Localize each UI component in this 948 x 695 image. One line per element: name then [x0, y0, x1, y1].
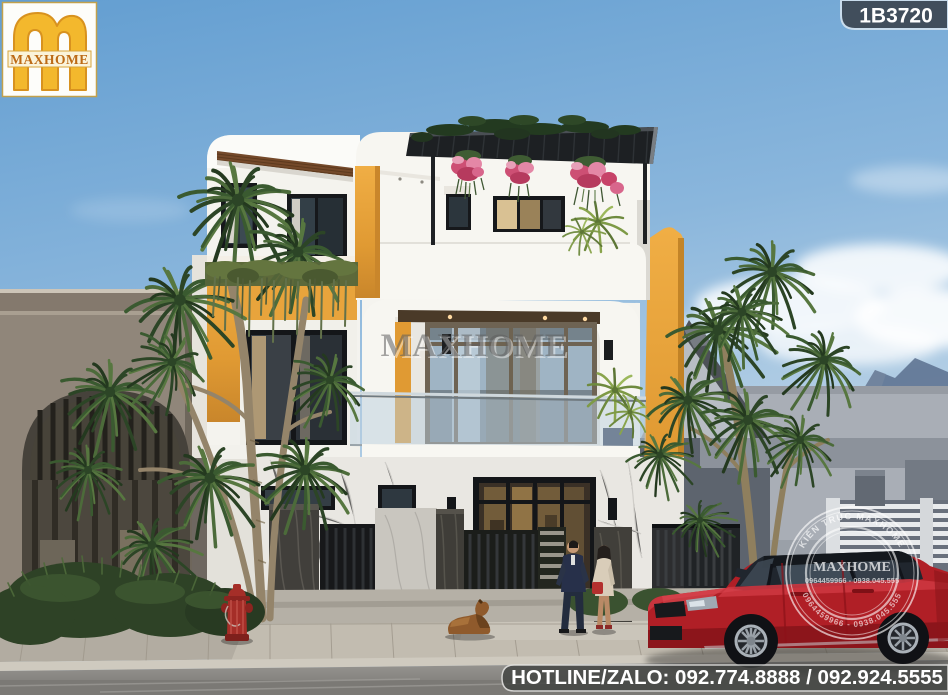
svg-text:MAXHOME: MAXHOME — [381, 328, 568, 364]
svg-text:MAXHOME: MAXHOME — [813, 560, 891, 575]
svg-text:MAXHOME: MAXHOME — [10, 52, 89, 67]
svg-text:1B3720: 1B3720 — [859, 5, 933, 28]
svg-text:0964459966 - 0938.045.555: 0964459966 - 0938.045.555 — [805, 576, 899, 585]
svg-text:HOTLINE/ZALO: 092.774.8888 / 0: HOTLINE/ZALO: 092.774.8888 / 092.924.555… — [511, 666, 943, 689]
